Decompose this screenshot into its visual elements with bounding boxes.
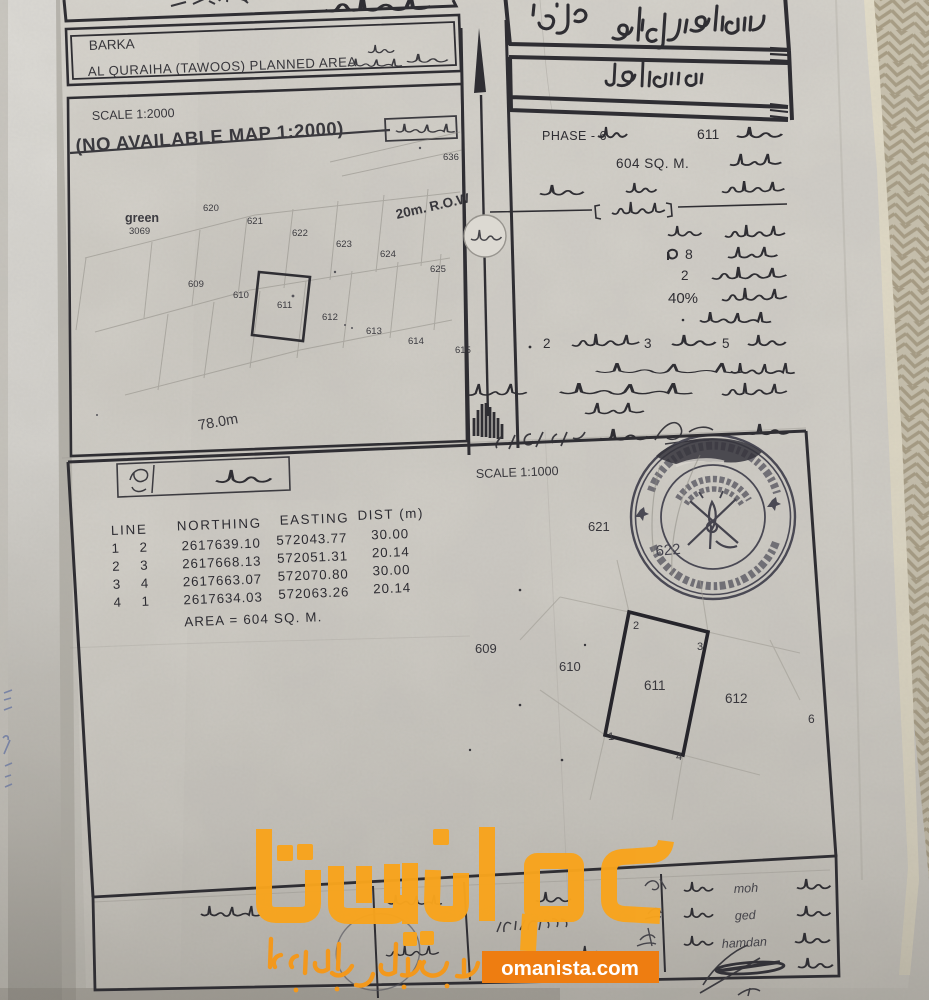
svg-text:2617634.03: 2617634.03 — [183, 589, 263, 607]
svg-text:572063.26: 572063.26 — [278, 584, 349, 602]
svg-text:1: 1 — [141, 594, 150, 609]
svg-text:LINE: LINE — [111, 522, 148, 538]
svg-text:20.14: 20.14 — [373, 580, 411, 596]
svg-text:622: 622 — [292, 228, 308, 239]
svg-text:4: 4 — [141, 576, 150, 591]
svg-text:5: 5 — [722, 336, 730, 351]
svg-text:4: 4 — [676, 751, 682, 763]
svg-text:3: 3 — [644, 336, 652, 351]
svg-text:3: 3 — [697, 641, 703, 653]
svg-text:612: 612 — [322, 312, 338, 323]
svg-text:572070.80: 572070.80 — [277, 566, 348, 584]
svg-text:2617663.07: 2617663.07 — [183, 571, 263, 589]
svg-text:3: 3 — [140, 558, 149, 573]
svg-text:624: 624 — [380, 249, 396, 260]
svg-text:PHASE - 6: PHASE - 6 — [542, 129, 607, 143]
svg-text:ged: ged — [734, 908, 757, 923]
svg-text:609: 609 — [475, 641, 497, 656]
svg-text:BARKA: BARKA — [89, 36, 135, 53]
svg-text:2617639.10: 2617639.10 — [181, 535, 261, 553]
svg-text:613: 613 — [366, 326, 382, 337]
svg-text:30.00: 30.00 — [372, 562, 410, 578]
svg-text:3: 3 — [113, 577, 122, 592]
svg-text:40%: 40% — [668, 290, 698, 307]
svg-text:3069: 3069 — [129, 226, 150, 237]
svg-text:622: 622 — [655, 541, 681, 560]
svg-text:20.14: 20.14 — [372, 544, 410, 560]
svg-text:609: 609 — [188, 279, 204, 290]
svg-text:636: 636 — [443, 152, 459, 163]
svg-text:NORTHING: NORTHING — [177, 515, 263, 533]
svg-text:30.00: 30.00 — [371, 526, 409, 542]
svg-text:614: 614 — [408, 336, 424, 347]
svg-text:572051.31: 572051.31 — [277, 548, 348, 566]
svg-text:621: 621 — [247, 216, 263, 227]
svg-text:1: 1 — [111, 541, 120, 556]
svg-text:621: 621 — [588, 519, 610, 534]
svg-text:625: 625 — [430, 264, 446, 275]
svg-text:moh: moh — [733, 881, 758, 896]
svg-text:620: 620 — [203, 203, 219, 214]
svg-text:1: 1 — [608, 731, 614, 743]
svg-text:2: 2 — [112, 559, 121, 574]
svg-text:2617668.13: 2617668.13 — [182, 553, 262, 571]
svg-text:611: 611 — [644, 678, 666, 693]
svg-text:623: 623 — [336, 239, 352, 250]
svg-text:EASTING: EASTING — [279, 510, 349, 528]
svg-text:572043.77: 572043.77 — [276, 530, 347, 548]
svg-text:2: 2 — [543, 336, 551, 351]
svg-text:610: 610 — [233, 290, 249, 301]
svg-text:2: 2 — [633, 620, 639, 632]
svg-text:DIST (m): DIST (m) — [357, 505, 424, 522]
svg-text:2: 2 — [681, 268, 689, 283]
svg-text:6: 6 — [808, 712, 815, 726]
svg-text:611: 611 — [697, 126, 720, 142]
svg-text:hamdan: hamdan — [721, 935, 767, 951]
svg-text:green: green — [125, 211, 159, 225]
svg-text:604 SQ. M.: 604 SQ. M. — [616, 156, 689, 171]
svg-text:4: 4 — [113, 595, 122, 610]
svg-text:8: 8 — [685, 246, 693, 262]
svg-text:612: 612 — [725, 691, 748, 706]
svg-text:2: 2 — [139, 540, 148, 555]
svg-text:611: 611 — [277, 300, 292, 311]
svg-text:610: 610 — [559, 659, 581, 674]
svg-text:omanista.com: omanista.com — [501, 957, 639, 980]
